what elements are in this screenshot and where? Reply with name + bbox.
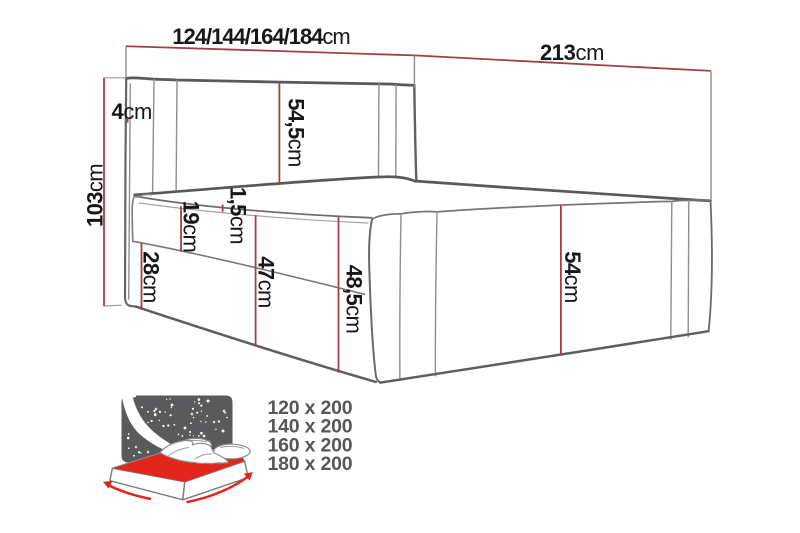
svg-text:48,5cm: 48,5cm	[342, 265, 367, 334]
svg-text:103cm: 103cm	[83, 164, 108, 227]
svg-text:180 x 200: 180 x 200	[268, 453, 353, 475]
svg-text:47cm: 47cm	[254, 256, 279, 307]
svg-text:19cm: 19cm	[179, 201, 204, 252]
svg-text:124/144/164/184cm: 124/144/164/184cm	[172, 24, 350, 49]
svg-text:4cm: 4cm	[112, 99, 152, 124]
svg-text:28cm: 28cm	[139, 251, 164, 302]
svg-text:1,5cm: 1,5cm	[226, 187, 251, 244]
svg-text:213cm: 213cm	[540, 40, 604, 65]
svg-text:54cm: 54cm	[560, 251, 585, 302]
svg-text:54,5cm: 54,5cm	[284, 98, 309, 167]
